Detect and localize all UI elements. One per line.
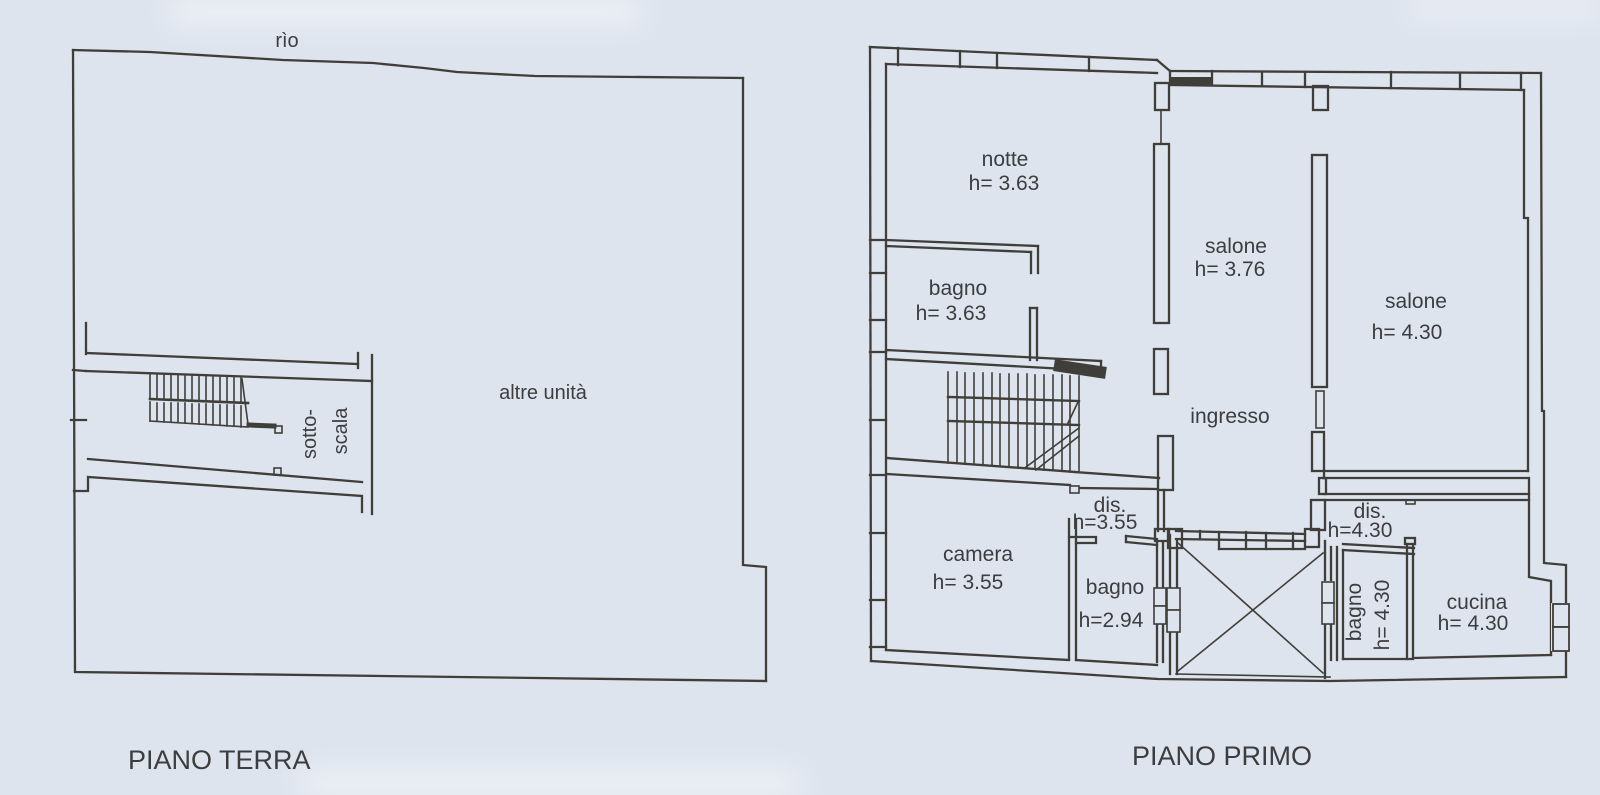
svg-text:h= 3.63: h= 3.63 — [916, 302, 987, 325]
svg-text:bagno: bagno — [1343, 583, 1366, 641]
svg-text:h= 3.76: h= 3.76 — [1195, 258, 1266, 281]
svg-text:h=4.30: h=4.30 — [1328, 519, 1393, 542]
svg-text:h=2.94: h=2.94 — [1079, 609, 1144, 632]
svg-text:PIANO PRIMO: PIANO PRIMO — [1132, 741, 1312, 771]
svg-text:salone: salone — [1385, 290, 1447, 313]
svg-text:cucina: cucina — [1447, 591, 1508, 614]
svg-text:camera: camera — [943, 543, 1013, 566]
svg-text:bagno: bagno — [929, 277, 987, 300]
svg-text:h= 3.63: h= 3.63 — [969, 172, 1040, 195]
svg-text:altre unità: altre unità — [499, 382, 588, 404]
svg-text:h= 3.55: h= 3.55 — [933, 571, 1004, 594]
svg-text:salone: salone — [1205, 235, 1267, 258]
svg-text:PIANO TERRA: PIANO TERRA — [128, 745, 311, 775]
svg-text:notte: notte — [982, 148, 1029, 171]
svg-text:ingresso: ingresso — [1190, 405, 1269, 428]
svg-text:bagno: bagno — [1086, 576, 1144, 599]
svg-text:scala: scala — [330, 407, 352, 455]
svg-text:rìo: rìo — [275, 30, 298, 52]
svg-text:h= 4.30: h= 4.30 — [1372, 321, 1443, 344]
svg-text:h= 4.30: h= 4.30 — [1438, 612, 1509, 635]
svg-text:h=3.55: h=3.55 — [1073, 511, 1138, 534]
svg-text:sotto-: sotto- — [299, 409, 321, 459]
svg-text:h= 4.30: h= 4.30 — [1371, 580, 1394, 651]
